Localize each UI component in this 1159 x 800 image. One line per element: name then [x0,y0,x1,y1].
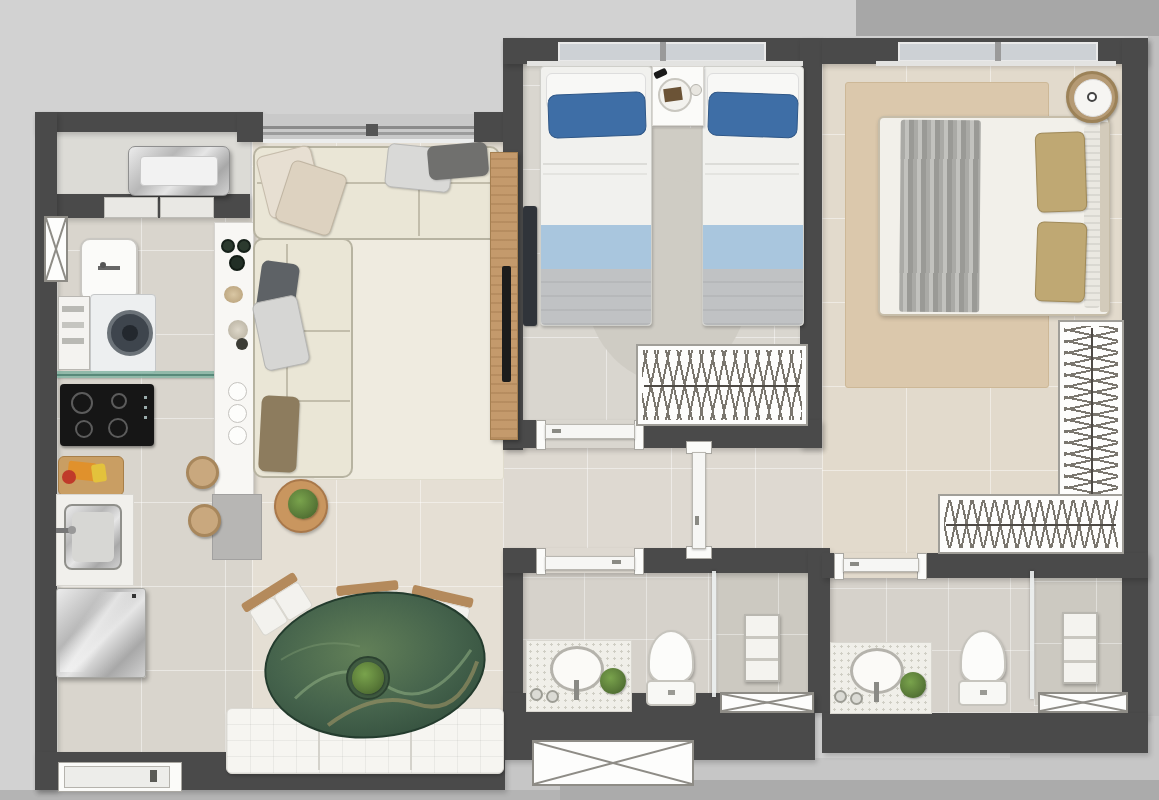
bathroom1-niche-shelf1 [746,636,778,639]
master-gold-pillow-2 [1035,221,1088,303]
bathroom2-toilet-bowl [960,630,1006,684]
master-throw-blanket [899,120,981,313]
cooktop-burner-3 [75,420,93,438]
bathroom2-niche-shelf2 [1064,660,1096,663]
bed-sheet-fold2 [705,173,799,175]
bathroom1-niche-shelf2 [746,658,778,661]
bathroom1-toilet-bowl [648,630,694,684]
ledge-shelf-right [160,197,214,218]
island-plate-3 [228,426,247,445]
laundry-shelf-stripe2 [62,322,84,328]
bed-sheet-fold1 [543,163,647,165]
side-table-plant [288,489,318,519]
service-shaft-x-box [44,216,68,282]
bathroom1-door-jamb-right [634,548,644,575]
centerpiece-plant [352,662,384,694]
cooktop-burner-4 [108,418,128,438]
refrigerator-sheen [60,592,140,672]
bg-top-right-band [856,0,1159,36]
laundry-sink [80,238,138,302]
sofa-pillow-tan [258,395,300,473]
food-red [62,470,76,484]
master-window-mullion [995,42,1001,62]
bed-lightblue-band [703,225,803,269]
wall-bathroom2-bottom [822,713,1148,753]
bathroom1-faucet [574,680,579,700]
master-bed [878,116,1110,316]
cooktop-burner-2 [111,393,127,409]
twin-bed-right [702,66,804,326]
kitchen-faucet-knob [68,526,76,534]
twin-bedroom-tv [523,206,537,326]
bathroom2-faucet [874,682,879,702]
living-tv [502,266,511,382]
wall-window-post-right [474,112,506,142]
washing-machine-drum-center [122,325,138,341]
bathroom2-door-handle [850,562,859,566]
nightstand-book [663,87,683,102]
hallway-floor [503,448,822,553]
bed-gray-blanket [541,269,651,325]
flower-decor-2 [228,320,248,340]
cooktop-burner-1 [71,392,93,414]
refrigerator-handle [132,594,136,598]
master-white-frill [1084,126,1100,308]
bed-lightblue-band [541,225,651,269]
bathroom1-shower-partition [712,571,716,697]
flower-decor-1 [224,286,243,303]
bathroom1-plant [600,668,626,694]
bathroom2-plant [900,672,926,698]
bathroom2-candle-1 [834,690,847,703]
master-window-sill [876,61,1116,66]
bathroom2-niche-shelf1 [1064,636,1096,639]
bathroom1-candle-2 [546,690,559,703]
hall-door-handle [695,516,699,525]
kitchen-sink-inner [72,512,114,562]
bathroom1-door-leaf [545,556,635,570]
bathroom2-candle-2 [850,692,863,705]
master-side-table-center [1087,92,1097,102]
laundry-shelf-stripe3 [62,338,84,344]
master-gold-pillow-1 [1035,131,1088,213]
bar-stool-2 [188,504,221,537]
bottom-duct-x-box [532,740,694,786]
bg-right-strip [1148,36,1159,716]
food-yellow [91,463,107,483]
bed-sheet-fold2 [543,173,647,175]
bathroom2-duct-x-box [1038,692,1128,713]
bathroom1-shower-niche [744,614,780,682]
living-window-mullion [366,124,378,136]
island-plate-1 [228,382,247,401]
bar-stool-1 [186,456,219,489]
wall-window-post-left [237,112,263,142]
twin-bedroom-door-handle [552,429,561,433]
decor-bowl-1 [221,239,235,253]
cooktop [60,384,154,446]
twin-bed-left [540,66,652,326]
bathroom1-door-handle [612,560,621,564]
entry-door-handle [150,770,157,782]
bathroom2-shower-partition [1030,571,1034,699]
bed-blue-pillow [707,91,798,138]
bathroom1-candle-1 [530,688,543,701]
ledge-shelf-left [104,197,158,218]
cooktop-controls [144,396,147,399]
living-window-sill [263,139,474,143]
island-plate-2 [228,404,247,423]
bathroom2-toilet-button [980,690,987,695]
wall-top-left [35,112,259,132]
bed-sheet-fold1 [705,163,799,165]
bathroom1-toilet-button [668,690,675,695]
master-closet-hangers-horizontal [944,500,1118,548]
wall-left-outer [35,112,57,790]
twin-wardrobe-hangers [642,350,802,420]
hall-door-leaf [692,452,706,549]
bathroom1-duct-x-box [720,692,814,713]
laundry-drain [100,262,106,268]
sofa-pillow-dark-1 [427,141,490,180]
master-headboard [1100,122,1109,312]
ac-condenser-panel [140,156,218,186]
bed-gray-blanket [703,269,803,325]
bed-blue-pillow [547,91,646,138]
bathroom2-shower-niche [1062,612,1098,684]
decor-bowl-3 [229,255,245,271]
decor-bowl-2 [237,239,251,253]
laundry-shelf-stripe1 [62,306,84,312]
floor-plan-canvas [0,0,1159,800]
flower-vase-dark [236,338,248,350]
wall-right-outer [1122,38,1148,718]
nightstand-cup [690,84,702,96]
twin-bedroom-window-mullion [660,42,666,62]
